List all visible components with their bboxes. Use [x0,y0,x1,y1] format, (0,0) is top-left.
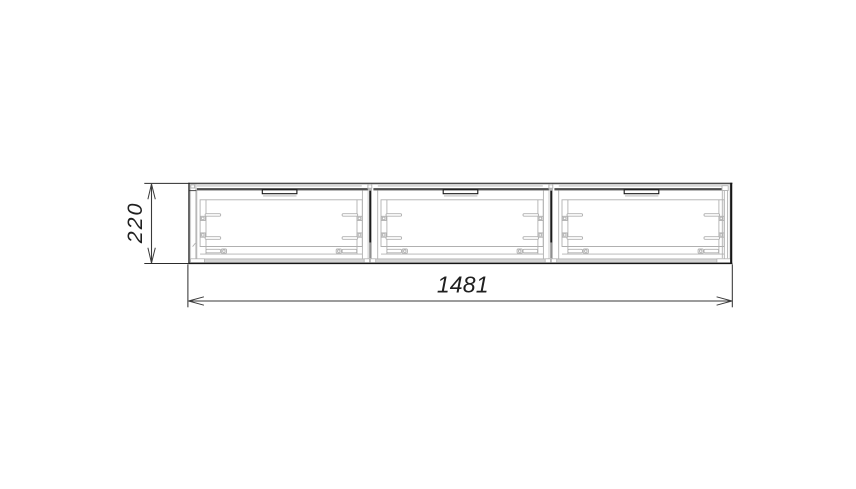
svg-text:220: 220 [123,202,147,245]
svg-text:1481: 1481 [437,272,489,298]
